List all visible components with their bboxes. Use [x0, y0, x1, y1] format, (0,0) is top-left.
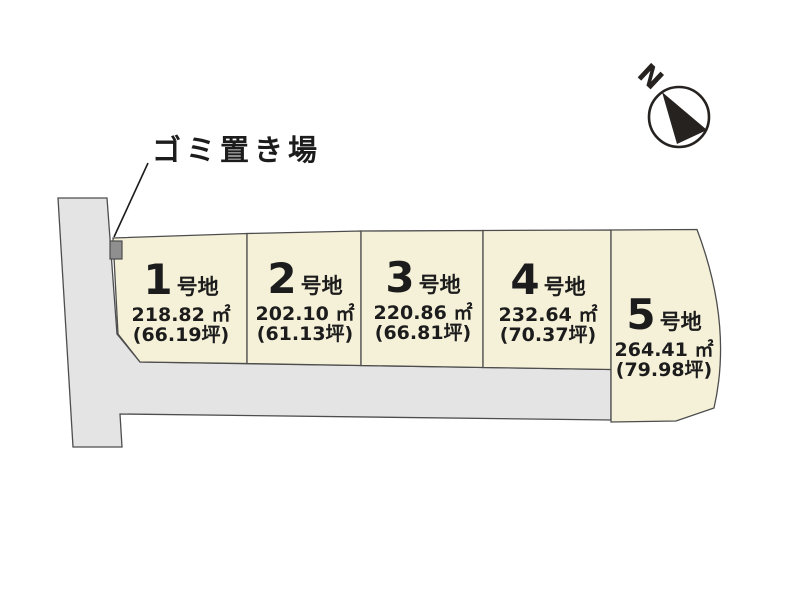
- north-compass: N: [631, 58, 709, 147]
- plot-3-label: 3 号地 220.86 ㎡ (66.81坪): [374, 257, 473, 344]
- plot-area-tsubo: (66.81坪): [374, 324, 473, 343]
- plot-number: 5: [626, 294, 654, 336]
- plot-number: 1: [143, 259, 171, 301]
- plot-2-label: 2 号地 202.10 ㎡ (61.13坪): [256, 258, 355, 345]
- plot-5-title: 5 号地: [615, 294, 714, 336]
- plot-number-suffix: 号地: [660, 312, 702, 333]
- plot-1-title: 1 号地: [132, 259, 231, 301]
- plot-number: 4: [510, 259, 538, 301]
- plot-area-tsubo: (79.98坪): [615, 361, 714, 380]
- plot-number: 3: [385, 257, 413, 299]
- plot-3-title: 3 号地: [374, 257, 473, 299]
- plot-area-tsubo: (70.37坪): [499, 326, 598, 345]
- land-plot-diagram: N ゴミ置き場 1 号地 218.82 ㎡ (66.19坪) 2 号地 202.…: [0, 0, 800, 600]
- plot-number-suffix: 号地: [544, 277, 586, 298]
- plot-area-m2: 220.86 ㎡: [374, 304, 473, 323]
- plot-area-m2: 264.41 ㎡: [615, 341, 714, 360]
- plot-area-m2: 232.64 ㎡: [499, 306, 598, 325]
- plot-number-suffix: 号地: [419, 275, 461, 296]
- garbage-leader-line: [114, 163, 148, 237]
- plot-number-suffix: 号地: [301, 276, 343, 297]
- plot-area-m2: 218.82 ㎡: [132, 306, 231, 325]
- plot-area-m2: 202.10 ㎡: [256, 305, 355, 324]
- plot-number: 2: [267, 258, 295, 300]
- plot-number-suffix: 号地: [177, 277, 219, 298]
- plot-2-title: 2 号地: [256, 258, 355, 300]
- plot-1-label: 1 号地 218.82 ㎡ (66.19坪): [132, 259, 231, 346]
- plot-area-tsubo: (66.19坪): [132, 326, 231, 345]
- plot-5-label: 5 号地 264.41 ㎡ (79.98坪): [615, 294, 714, 381]
- garbage-area-label: ゴミ置き場: [152, 136, 322, 165]
- plot-4-title: 4 号地: [499, 259, 598, 301]
- plot-4-label: 4 号地 232.64 ㎡ (70.37坪): [499, 259, 598, 346]
- garbage-box-marker: [110, 241, 122, 259]
- plot-area-tsubo: (61.13坪): [256, 325, 355, 344]
